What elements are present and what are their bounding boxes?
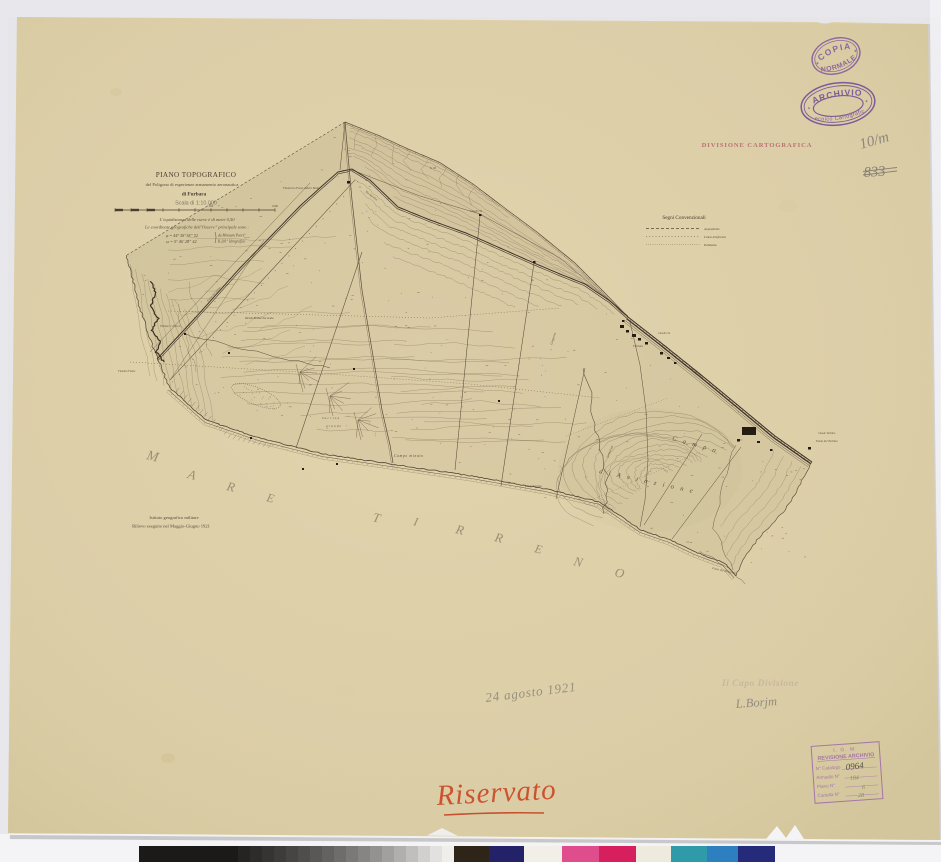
svg-text:PIANO TOPOGRAFICO: PIANO TOPOGRAFICO bbox=[156, 171, 237, 179]
svg-text:Casale Turbino: Casale Turbino bbox=[818, 432, 836, 435]
svg-text:Segni Convenzionali: Segni Convenzionali bbox=[662, 215, 706, 221]
svg-text:Istituto geografico militare: Istituto geografico militare bbox=[149, 515, 198, 520]
svg-text:p.te Langurina: p.te Langurina bbox=[524, 485, 542, 488]
svg-text:Rienda di Macchia tonda: Rienda di Macchia tonda bbox=[244, 317, 274, 320]
svg-text:Il Capo Divisione: Il Capo Divisione bbox=[721, 679, 799, 689]
svg-text:Ponte del Turbino: Ponte del Turbino bbox=[815, 439, 838, 443]
svg-text:Fiumino Fiume: Fiumino Fiume bbox=[117, 370, 136, 373]
svg-text:28: 28 bbox=[858, 793, 864, 799]
svg-text:0964: 0964 bbox=[845, 760, 864, 772]
svg-text:Campo minato: Campo minato bbox=[394, 454, 424, 458]
svg-text:Casello 54: Casello 54 bbox=[658, 332, 671, 335]
svg-text:K. 60: K. 60 bbox=[429, 167, 437, 170]
svg-text:6: 6 bbox=[862, 785, 865, 791]
svg-text:grande: grande bbox=[326, 424, 342, 428]
svg-text:Riservato: Riservato bbox=[435, 774, 558, 812]
svg-text:di Furbara: di Furbara bbox=[182, 192, 207, 198]
svg-text:Acquedotto: Acquedotto bbox=[703, 227, 720, 231]
svg-text:Filettino 1° di ferro: Filettino 1° di ferro bbox=[159, 325, 181, 328]
svg-text:DIVISIONE CARTOGRAFICA: DIVISIONE CARTOGRAFICA bbox=[702, 142, 813, 149]
svg-text:del Poligono di esperienze arm: del Poligono di esperienze armamento aer… bbox=[146, 182, 239, 187]
svg-text:Casello 59: Casello 59 bbox=[470, 210, 483, 213]
svg-text:Palizzata: Palizzata bbox=[703, 243, 717, 247]
svg-text:Linea telefonica: Linea telefonica bbox=[703, 235, 726, 239]
svg-text:Taccina: Taccina bbox=[322, 416, 340, 420]
svg-text:Fiumicino Fosso Albero Bello: Fiumicino Fosso Albero Bello bbox=[282, 186, 320, 190]
svg-text:Furbara: Furbara bbox=[632, 344, 644, 348]
svg-text:Rilievo eseguito nel Maggio: Rilievo eseguito nel Maggio-Giugno 1921 bbox=[132, 524, 211, 529]
svg-text:L.Borjm: L.Borjm bbox=[734, 694, 777, 711]
svg-text:184: 184 bbox=[850, 774, 860, 782]
